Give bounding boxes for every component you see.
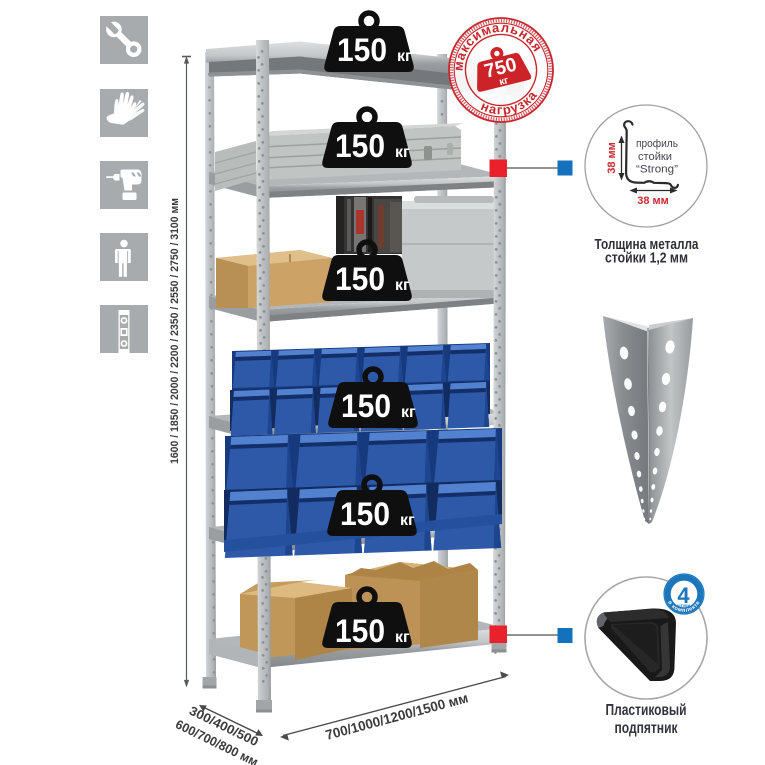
svg-text:1600 / 1850 / 2000 / 2200 / 23: 1600 / 1850 / 2000 / 2200 / 2350 / 2550 … — [169, 198, 181, 464]
svg-text:38 мм: 38 мм — [637, 195, 669, 207]
svg-text:кг: кг — [395, 629, 410, 646]
svg-text:150: 150 — [335, 261, 385, 297]
svg-text:150: 150 — [340, 496, 390, 532]
svg-text:кг: кг — [397, 48, 412, 65]
svg-text:150: 150 — [335, 613, 385, 649]
svg-text:38 мм: 38 мм — [606, 142, 618, 174]
svg-text:подпятник: подпятник — [615, 720, 678, 737]
svg-text:150: 150 — [337, 32, 387, 68]
svg-text:профиль: профиль — [636, 138, 678, 150]
svg-text:“Strong”: “Strong” — [636, 164, 678, 176]
svg-text:кг: кг — [401, 404, 416, 421]
svg-text:кг: кг — [395, 144, 410, 161]
svg-text:кг: кг — [400, 512, 415, 529]
svg-text:стойки 1,2 мм: стойки 1,2 мм — [605, 251, 688, 267]
svg-text:150: 150 — [335, 128, 385, 164]
svg-text:150: 150 — [341, 388, 391, 424]
svg-text:стойки: стойки — [638, 151, 672, 163]
svg-text:Пластиковый: Пластиковый — [606, 702, 687, 719]
svg-text:кг: кг — [395, 277, 410, 294]
